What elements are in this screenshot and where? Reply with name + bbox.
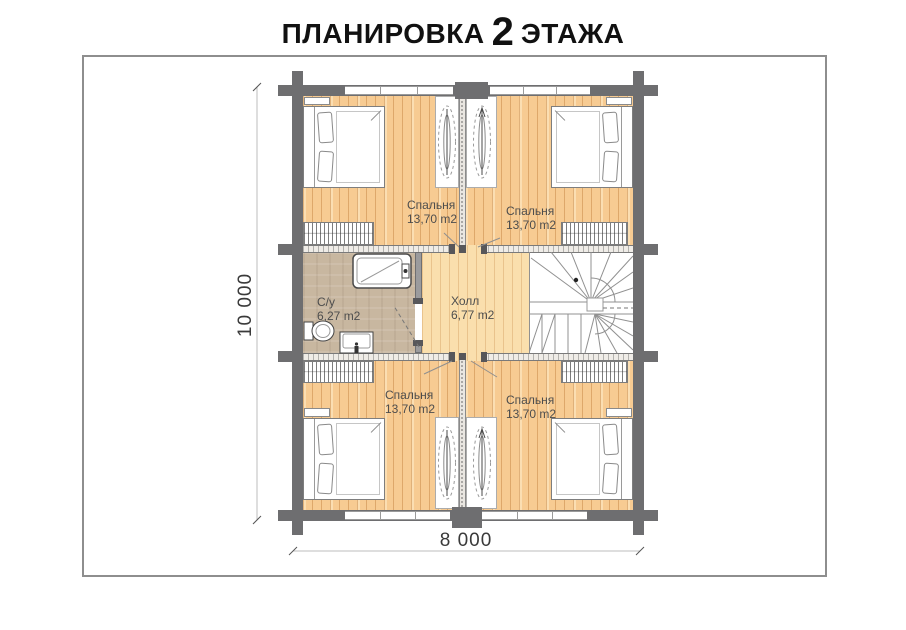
dimension-height: 10 000 — [235, 265, 257, 345]
room-area: 13,70 m2 — [385, 402, 435, 417]
room-area: 6,77 m2 — [451, 308, 494, 323]
room-area: 6,27 m2 — [317, 309, 360, 324]
room-label-bedroom-bottom-right: Спальня 13,70 m2 — [506, 393, 556, 422]
room-name: Спальня — [506, 204, 556, 218]
page: { "title": { "prefix": "ПЛАНИРОВКА", "nu… — [0, 0, 906, 630]
room-label-bathroom: С/у 6,27 m2 — [317, 295, 360, 324]
room-label-bedroom-bottom-left: Спальня 13,70 m2 — [385, 388, 435, 417]
room-area: 13,70 m2 — [506, 218, 556, 233]
room-name: С/у — [317, 295, 360, 309]
room-name: Спальня — [385, 388, 435, 402]
room-label-bedroom-top-left: Спальня 13,70 m2 — [407, 198, 457, 227]
dimension-width: 8 000 — [426, 530, 506, 552]
room-name: Холл — [451, 294, 494, 308]
room-name: Спальня — [407, 198, 457, 212]
room-label-bedroom-top-right: Спальня 13,70 m2 — [506, 204, 556, 233]
room-area: 13,70 m2 — [407, 212, 457, 227]
room-area: 13,70 m2 — [506, 407, 556, 422]
room-label-hall: Холл 6,77 m2 — [451, 294, 494, 323]
room-name: Спальня — [506, 393, 556, 407]
